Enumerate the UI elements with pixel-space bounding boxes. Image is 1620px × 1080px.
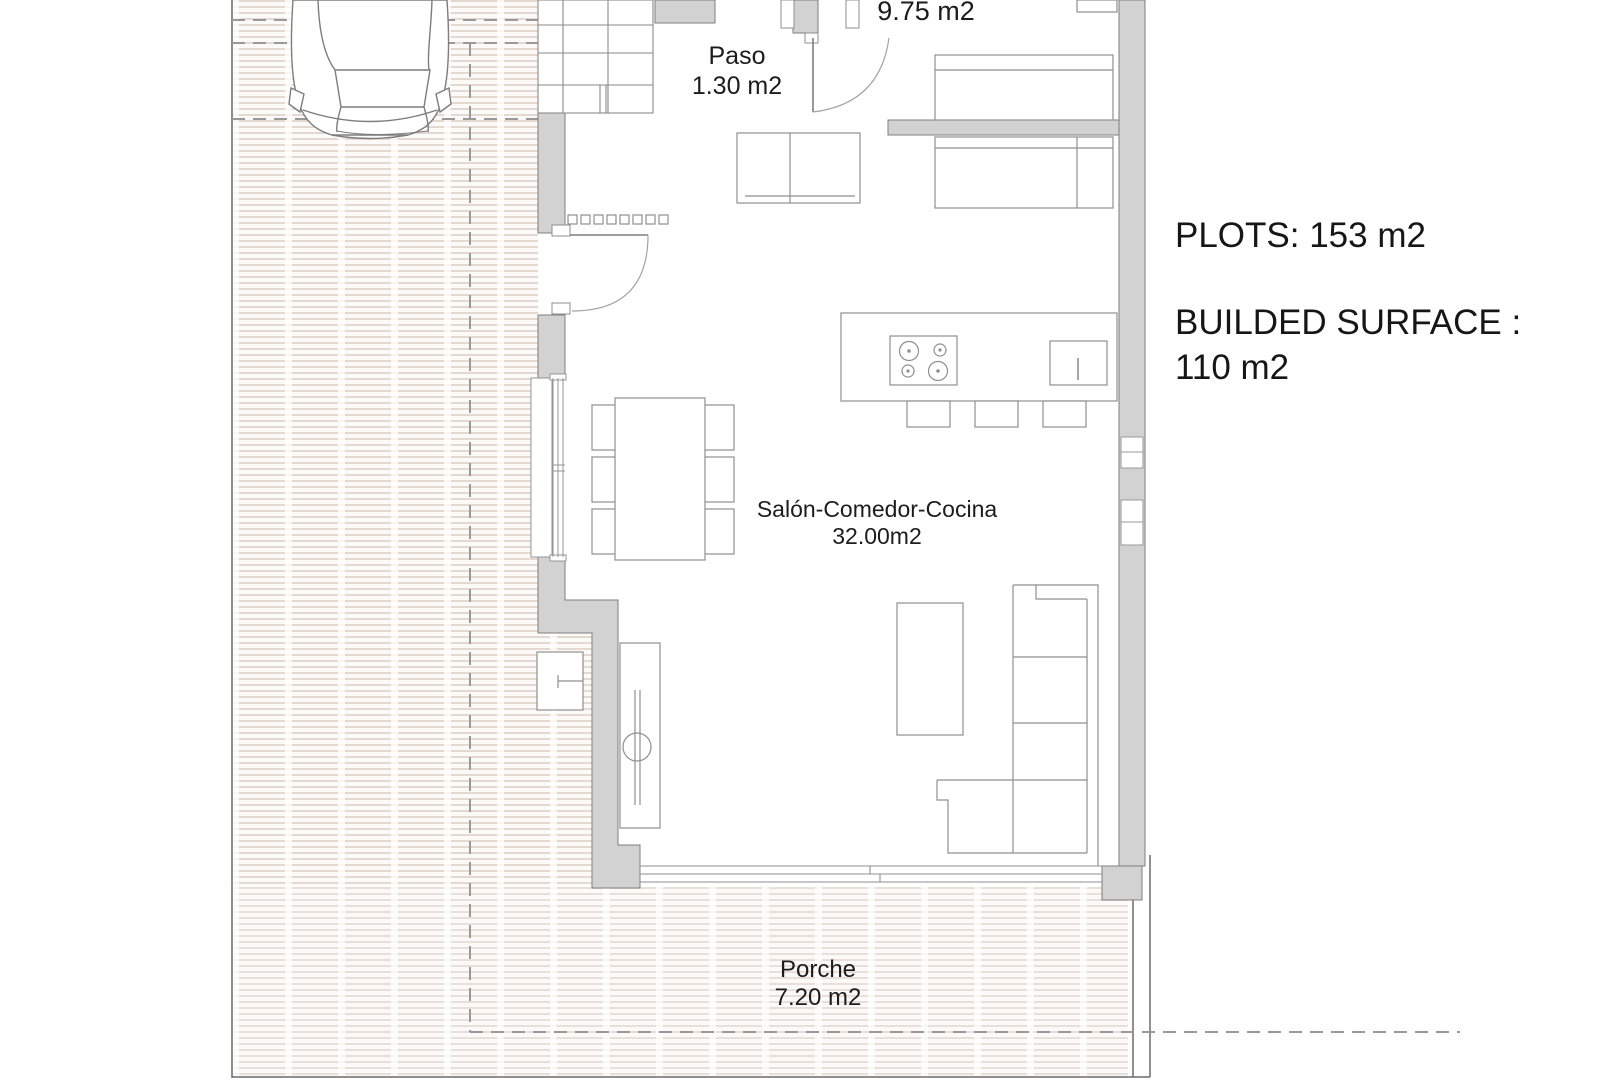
entrance-door [552, 225, 648, 314]
sliding-door [640, 866, 1102, 882]
porche-name-text: Porche [775, 956, 862, 984]
paso-name-text: Paso [692, 42, 782, 72]
salon-name-text: Salón-Comedor-Cocina [757, 496, 997, 523]
bedroom-area-text: 9.75 m2 [877, 0, 975, 26]
paso-area-text: 1.30 m2 [692, 72, 782, 102]
kitchen-counter-left [737, 133, 860, 203]
label-porche: Porche 7.20 m2 [775, 956, 862, 1013]
wall-corner-bottom-right [1102, 866, 1142, 900]
wall-right [1119, 0, 1145, 866]
threshold-dots [568, 215, 668, 224]
label-salon: Salón-Comedor-Cocina 32.00m2 [757, 496, 997, 550]
bedroom-door [805, 33, 889, 112]
porche-area-text: 7.20 m2 [775, 984, 862, 1012]
wall-paso [793, 0, 818, 33]
plots-text: PLOTS: 153 m2 [1175, 216, 1426, 256]
sink [1050, 341, 1107, 385]
label-paso: Paso 1.30 m2 [692, 42, 782, 101]
ac-unit [537, 652, 583, 710]
wardrobe-grid [538, 0, 653, 113]
label-bedroom-area: 9.75 m2 [877, 0, 975, 28]
dining-table [615, 398, 705, 560]
tv-unit [620, 643, 660, 828]
bar-stools [907, 401, 1086, 427]
wall-bedroom-bottom [888, 120, 1142, 135]
builded-surface-label: BUILDED SURFACE : [1175, 303, 1521, 343]
bedroom-closet [1077, 0, 1117, 12]
bedroom-doorframe-marks [781, 0, 859, 28]
car-top-view-icon [289, 0, 451, 139]
floor-plan-canvas: 9.75 m2 Paso 1.30 m2 Salón-Comedor-Cocin… [0, 0, 1620, 1080]
window-left [531, 374, 566, 561]
kitchen-island [841, 313, 1117, 427]
kitchen-counter-right [935, 137, 1113, 208]
coffee-table [897, 603, 963, 735]
wall-top-stub [655, 0, 715, 23]
cooktop [890, 336, 957, 385]
builded-surface-value: 110 m2 [1175, 348, 1289, 388]
salon-area-text: 32.00m2 [757, 523, 997, 550]
wall-left-mid [538, 315, 565, 378]
